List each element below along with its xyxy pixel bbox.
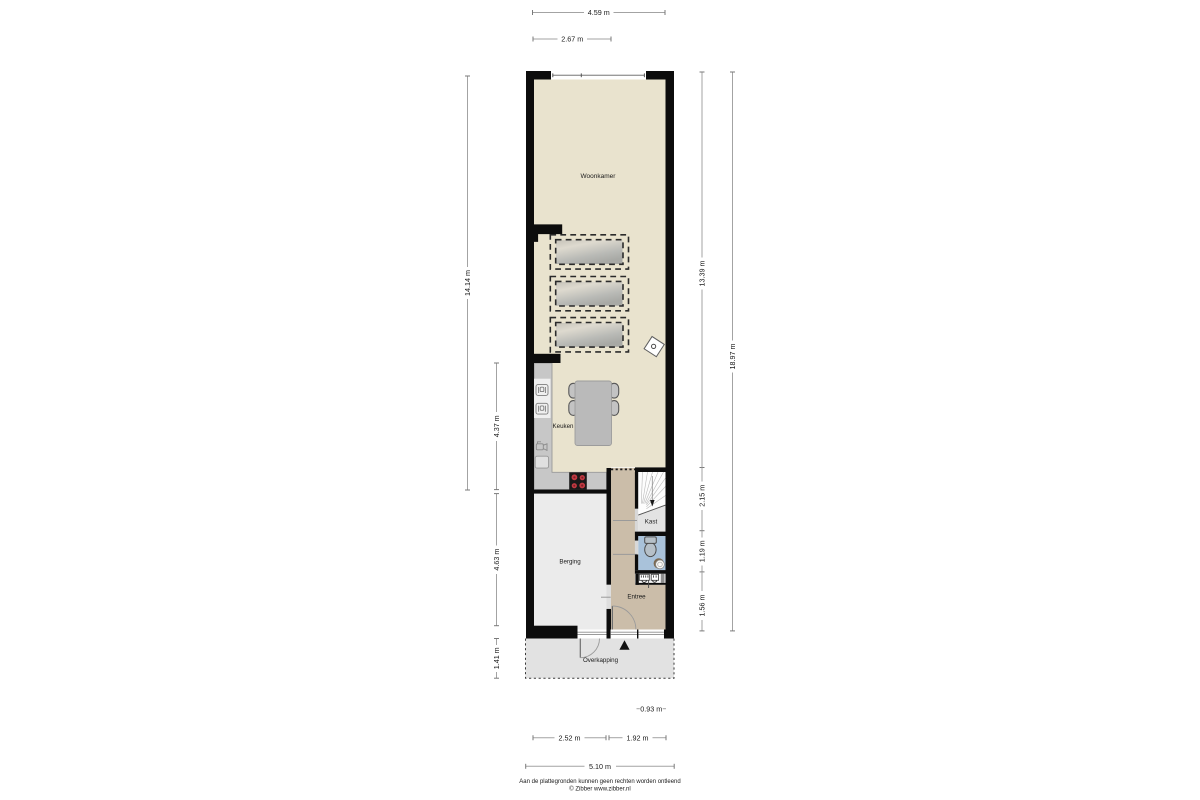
svg-text:Overkapping: Overkapping bbox=[583, 657, 619, 664]
svg-text:1.41 m: 1.41 m bbox=[492, 647, 501, 669]
svg-text:Woonkamer: Woonkamer bbox=[581, 173, 617, 180]
svg-text:Keuken: Keuken bbox=[553, 423, 575, 430]
svg-text:4.63 m: 4.63 m bbox=[492, 549, 501, 571]
svg-text:0.93 m: 0.93 m bbox=[640, 704, 662, 713]
svg-text:4.37 m: 4.37 m bbox=[492, 415, 501, 437]
svg-text:Kast: Kast bbox=[645, 518, 658, 525]
svg-text:2.52 m: 2.52 m bbox=[559, 733, 581, 742]
svg-text:1.56 m: 1.56 m bbox=[698, 595, 707, 617]
svg-text:1.19 m: 1.19 m bbox=[698, 540, 707, 562]
svg-text:1.92 m: 1.92 m bbox=[627, 733, 649, 742]
svg-text:2.15 m: 2.15 m bbox=[698, 485, 707, 507]
svg-text:© Zibber www.zibber.nl: © Zibber www.zibber.nl bbox=[569, 786, 630, 793]
svg-text:Aan de plattegronden kunnen ge: Aan de plattegronden kunnen geen rechten… bbox=[519, 779, 680, 785]
svg-text:Entree: Entree bbox=[627, 593, 646, 600]
svg-text:14.14 m: 14.14 m bbox=[463, 270, 472, 296]
svg-text:5.10 m: 5.10 m bbox=[589, 762, 611, 771]
svg-text:2.67 m: 2.67 m bbox=[561, 35, 583, 44]
svg-text:4.59 m: 4.59 m bbox=[588, 8, 610, 17]
svg-text:18.97 m: 18.97 m bbox=[728, 344, 737, 370]
svg-text:13.39 m: 13.39 m bbox=[698, 261, 707, 287]
svg-text:Berging: Berging bbox=[559, 558, 581, 565]
